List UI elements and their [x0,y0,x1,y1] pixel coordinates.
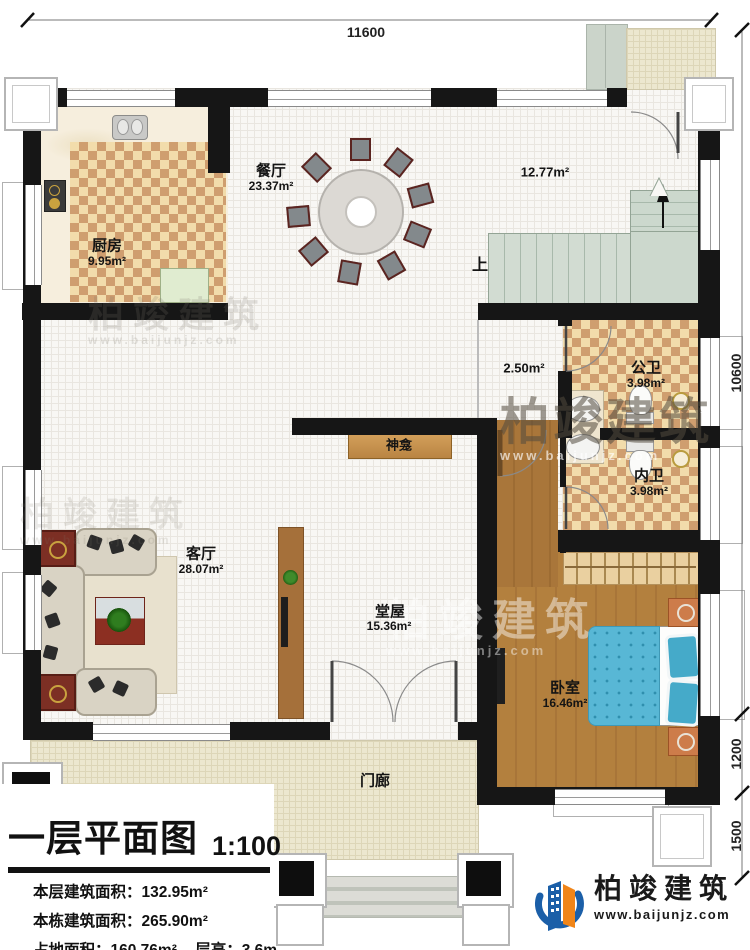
page-title: 一层平面图 [8,808,198,862]
room-area-living: 28.07m² [179,562,224,576]
room-area-ensuite-bath: 3.98m² [630,484,668,498]
shrine-label: 神龛 [386,435,412,454]
room-area-dining: 23.37m² [249,179,294,193]
room-area-bedroom: 16.46m² [543,696,588,710]
dimension-right-total: 10600 [728,343,744,403]
dimension-right-mid: 1200 [728,729,744,779]
room-area-stair-hall: 12.77m² [521,165,569,180]
room-area-public-bath: 3.98m² [627,376,665,390]
logo-website: www.baijunjz.com [594,907,734,922]
stat-value: 265.90m² [142,913,208,930]
stat-building-area: 本栋建筑面积：265.90m² [33,909,281,931]
title-block: 一层平面图 1:100 本层建筑面积：132.95m² 本栋建筑面积：265.9… [8,808,281,950]
stat-value: 160.76m² [111,942,177,950]
logo-building-icon [528,874,586,940]
dimension-top: 11600 [336,24,396,40]
stat-floor-area: 本层建筑面积：132.95m² [33,880,281,902]
stat-label: 占地面积： [33,942,111,950]
room-label-living: 客厅 [186,543,216,564]
stat-land-area: 占地面积：160.76m² 层高：3.6m [33,938,281,950]
stairs-up-label: 上 [472,251,488,275]
room-label-dining: 餐厅 [256,160,286,181]
stat-value: 3.6m [242,942,277,950]
drawing-scale: 1:100 [212,831,281,862]
stat-label: 本层建筑面积： [33,884,142,901]
room-label-bedroom: 卧室 [550,677,580,698]
title-underline [8,867,270,873]
room-area-kitchen: 9.95m² [88,254,126,268]
dimension-right-bottom: 1500 [728,811,744,861]
logo-company-name: 柏竣建筑 [594,874,734,905]
room-label-porch: 门廊 [360,770,390,791]
floor-plan: 柏竣建筑 www.baijunjz.com 柏竣建筑 www.baijunjz.… [0,0,750,950]
stat-value: 132.95m² [142,884,208,901]
company-logo: 柏竣建筑 www.baijunjz.com [528,874,734,940]
room-area-main-hall: 15.36m² [367,619,412,633]
room-label-public-bath: 公卫 [631,357,661,378]
stat-label: 层高： [195,942,242,950]
room-label-ensuite-bath: 内卫 [634,465,664,486]
stat-label: 本栋建筑面积： [33,913,142,930]
room-area-passage: 2.50m² [503,361,544,376]
room-label-kitchen: 厨房 [92,235,122,256]
